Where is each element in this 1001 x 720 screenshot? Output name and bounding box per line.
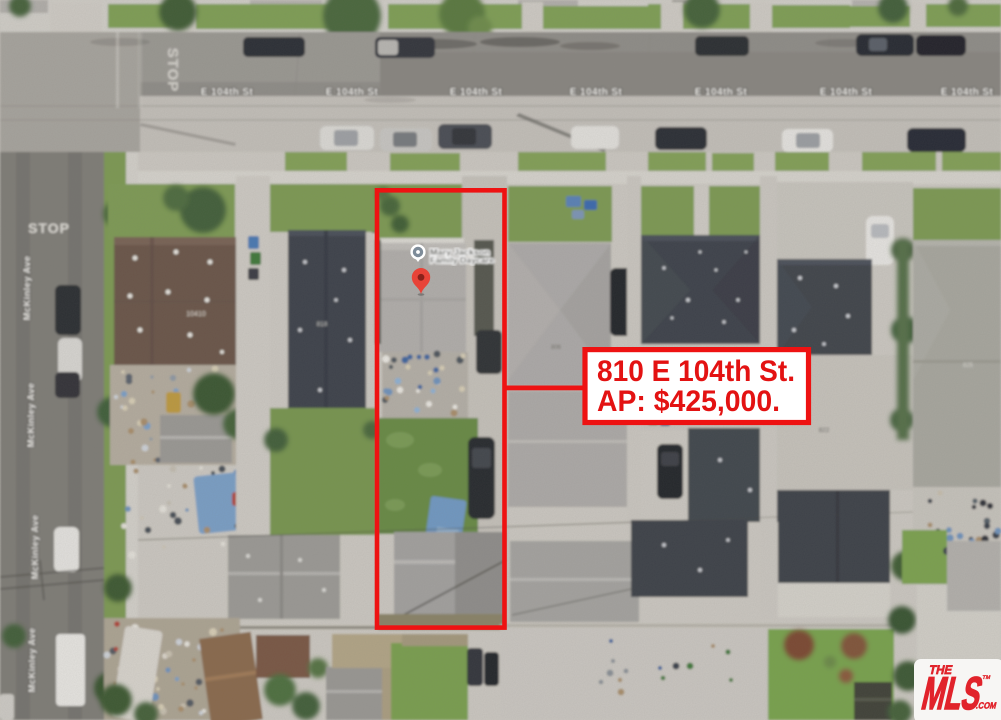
svg-text:.COM: .COM (975, 701, 997, 711)
svg-text:AP: $425,000.: AP: $425,000. (597, 385, 780, 418)
svg-text:810 E 104th St.: 810 E 104th St. (597, 355, 795, 388)
svg-text:Family Daycare: Family Daycare (430, 256, 495, 265)
svg-text:MLS: MLS (917, 668, 987, 719)
